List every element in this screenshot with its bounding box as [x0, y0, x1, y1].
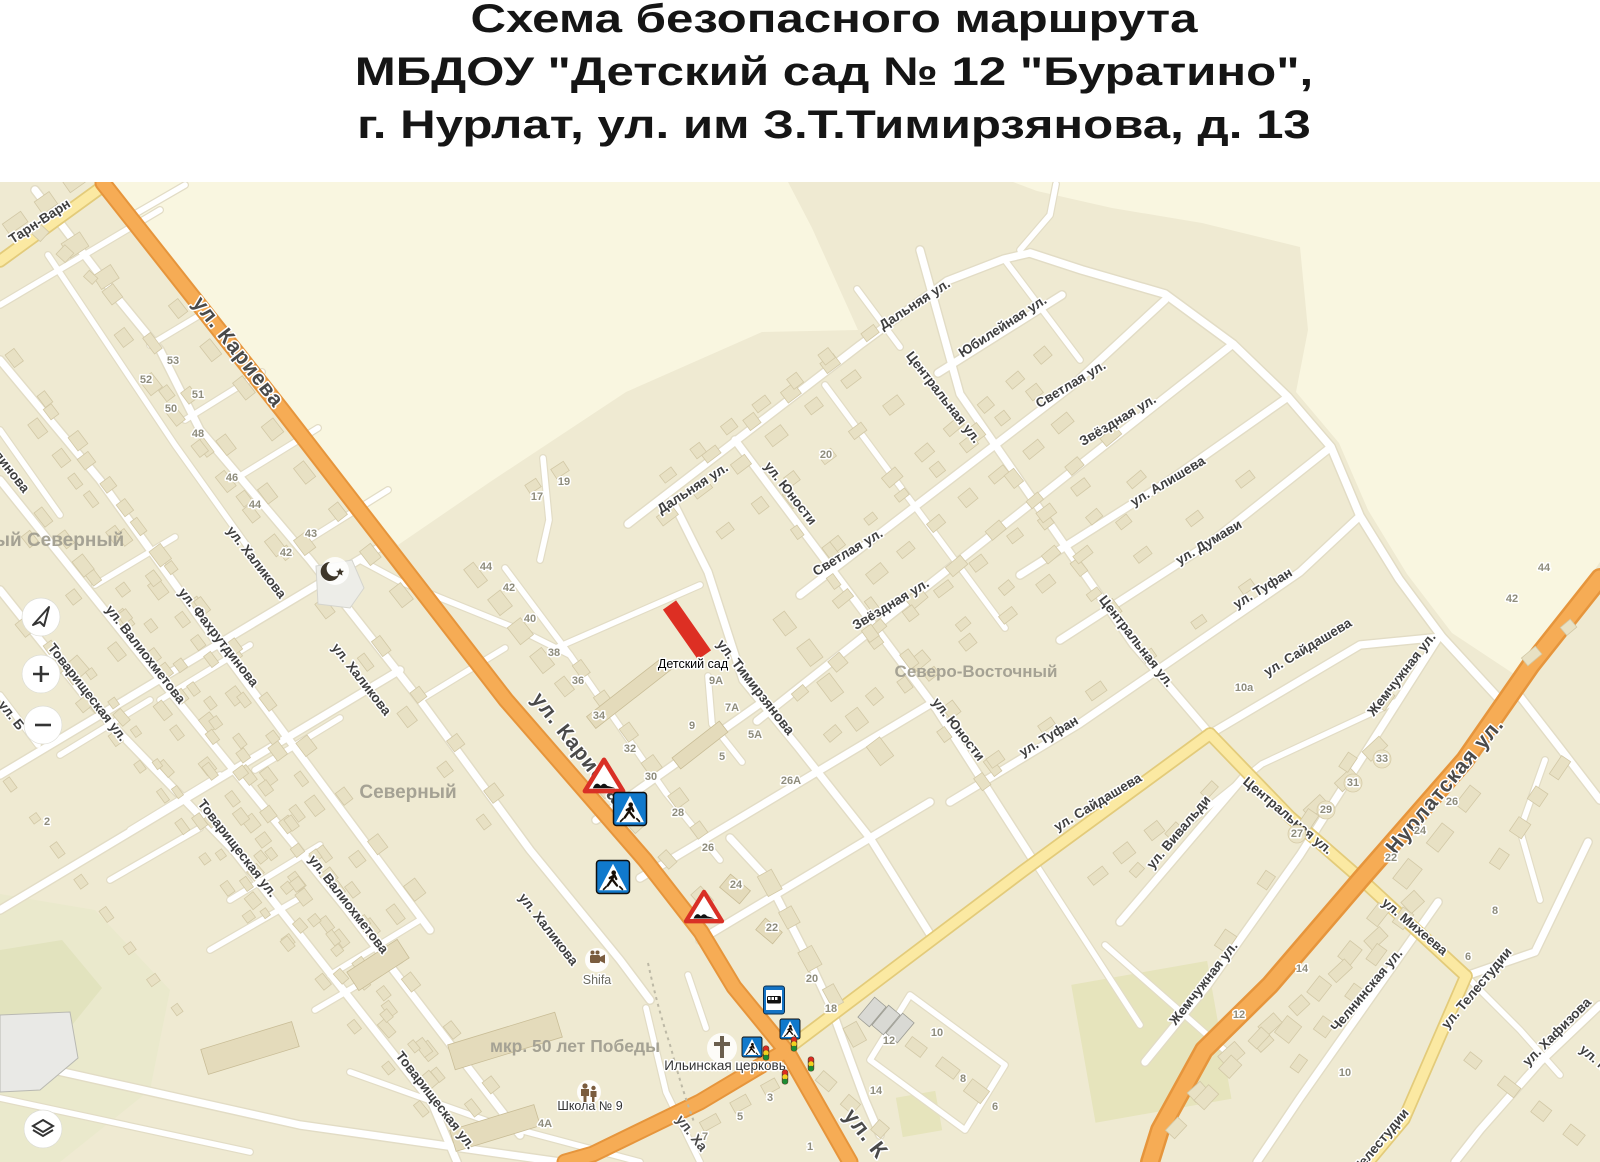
svg-text:ый Северный: ый Северный [0, 530, 124, 551]
svg-text:17: 17 [531, 491, 543, 503]
svg-text:34: 34 [593, 710, 606, 722]
svg-text:20: 20 [806, 973, 818, 985]
svg-text:53: 53 [167, 355, 179, 367]
svg-text:26: 26 [702, 842, 714, 854]
svg-text:48: 48 [192, 428, 204, 440]
svg-text:9А: 9А [709, 675, 723, 687]
svg-text:30: 30 [645, 771, 657, 783]
svg-text:40: 40 [524, 613, 536, 625]
svg-text:44: 44 [249, 499, 262, 511]
svg-text:10а: 10а [1235, 682, 1254, 694]
svg-text:12: 12 [883, 1035, 895, 1047]
svg-text:51: 51 [192, 389, 204, 401]
svg-text:43: 43 [305, 528, 317, 540]
svg-text:42: 42 [1506, 593, 1518, 605]
svg-text:20: 20 [820, 449, 832, 461]
svg-text:9: 9 [689, 720, 695, 732]
svg-text:6: 6 [1465, 951, 1471, 963]
svg-text:14: 14 [1296, 963, 1309, 975]
svg-text:5А: 5А [748, 729, 762, 741]
svg-text:Северный: Северный [359, 782, 456, 803]
svg-text:50: 50 [165, 403, 177, 415]
svg-text:5: 5 [719, 751, 725, 763]
svg-text:10: 10 [931, 1027, 943, 1039]
svg-text:5: 5 [737, 1111, 743, 1123]
svg-text:27: 27 [1291, 828, 1303, 840]
svg-text:38: 38 [548, 647, 560, 659]
svg-text:3: 3 [767, 1092, 773, 1104]
svg-text:33: 33 [1376, 753, 1388, 765]
svg-text:19: 19 [558, 476, 570, 488]
svg-text:мкр. 50 лет Победы: мкр. 50 лет Победы [490, 1036, 660, 1056]
svg-text:12: 12 [1233, 1009, 1245, 1021]
svg-text:Детский сад: Детский сад [658, 657, 729, 671]
svg-text:24: 24 [730, 879, 743, 891]
svg-text:46: 46 [226, 472, 238, 484]
svg-text:14: 14 [870, 1085, 883, 1097]
svg-text:2: 2 [44, 816, 50, 828]
svg-text:29: 29 [1320, 804, 1332, 816]
svg-text:8: 8 [960, 1073, 966, 1085]
svg-text:28: 28 [672, 807, 684, 819]
svg-text:6: 6 [992, 1101, 998, 1113]
svg-text:42: 42 [503, 582, 515, 594]
svg-text:26: 26 [1446, 796, 1458, 808]
svg-text:7: 7 [702, 1131, 708, 1143]
svg-text:24: 24 [1414, 825, 1427, 837]
svg-text:22: 22 [1385, 852, 1397, 864]
svg-text:32: 32 [624, 743, 636, 755]
svg-text:22: 22 [766, 922, 778, 934]
svg-text:10: 10 [1339, 1067, 1351, 1079]
svg-text:52: 52 [140, 374, 152, 386]
svg-text:26А: 26А [781, 775, 801, 787]
svg-text:36: 36 [572, 675, 584, 687]
svg-text:8: 8 [1492, 905, 1498, 917]
svg-text:Shifa: Shifa [583, 973, 612, 987]
svg-text:44: 44 [480, 561, 493, 573]
svg-text:31: 31 [1347, 777, 1359, 789]
svg-text:Северо-Восточный: Северо-Восточный [895, 662, 1058, 681]
svg-text:7А: 7А [725, 702, 739, 714]
svg-text:1: 1 [807, 1141, 813, 1153]
svg-text:42: 42 [280, 547, 292, 559]
svg-text:4А: 4А [538, 1118, 552, 1130]
svg-text:18: 18 [825, 1003, 837, 1015]
svg-text:44: 44 [1538, 562, 1551, 574]
